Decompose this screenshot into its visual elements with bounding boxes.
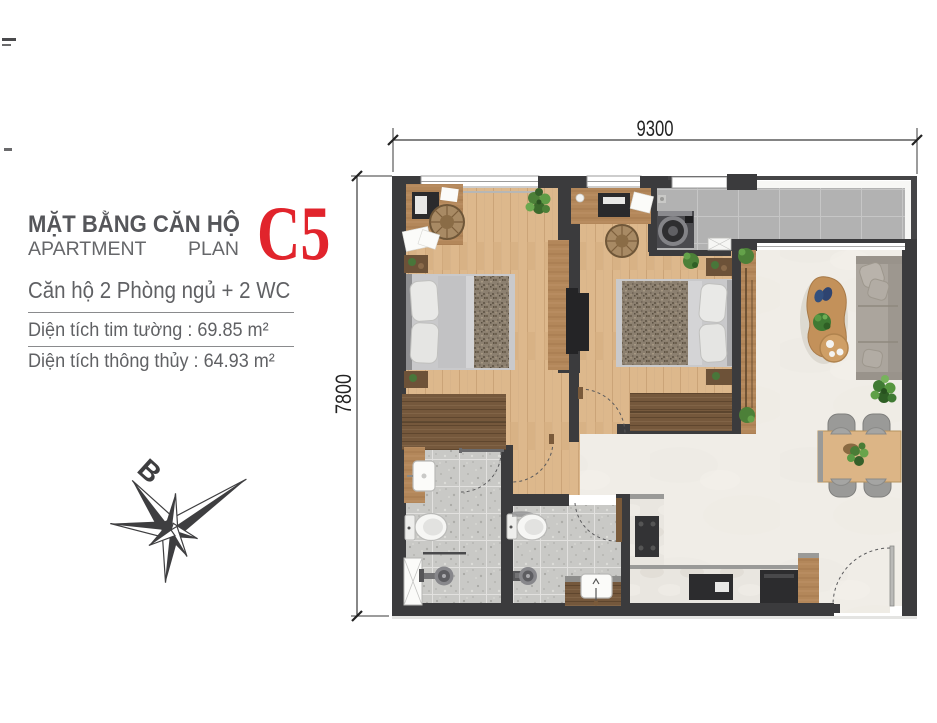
svg-text:B: B [132, 453, 168, 490]
svg-text:7800: 7800 [331, 374, 356, 414]
svg-text:9300: 9300 [637, 116, 674, 141]
